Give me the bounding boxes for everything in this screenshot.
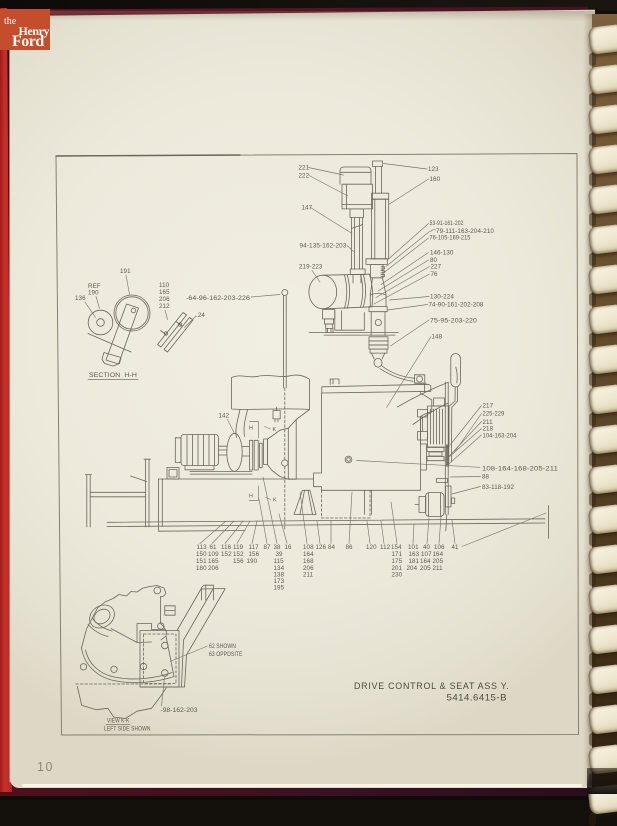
svg-text:120: 120: [366, 544, 377, 551]
svg-text:115: 115: [274, 558, 285, 565]
svg-text:123: 123: [428, 166, 439, 173]
svg-text:191: 191: [120, 268, 131, 275]
svg-text:109: 109: [208, 551, 219, 558]
svg-text:94-135-162-203: 94-135-162-203: [300, 243, 347, 250]
svg-text:41: 41: [452, 544, 460, 551]
svg-text:K: K: [273, 498, 277, 504]
svg-text:107: 107: [421, 551, 432, 558]
svg-text:171: 171: [392, 551, 403, 558]
svg-text:181: 181: [409, 558, 420, 565]
svg-text:88: 88: [482, 474, 490, 481]
svg-text:152: 152: [221, 551, 232, 558]
svg-text:164: 164: [433, 551, 444, 558]
svg-text:39: 39: [276, 551, 284, 558]
svg-text:K: K: [273, 427, 277, 433]
svg-text:106: 106: [434, 544, 445, 551]
svg-text:116: 116: [221, 544, 232, 551]
svg-text:205: 205: [420, 565, 431, 572]
svg-text:219-223: 219-223: [299, 264, 323, 271]
svg-text:-64-96-162-203-226: -64-96-162-203-226: [186, 295, 251, 302]
svg-text:.24: .24: [196, 312, 205, 319]
svg-text:110: 110: [159, 282, 170, 289]
svg-text:163: 163: [409, 551, 420, 558]
svg-text:-98-162-203: -98-162-203: [161, 707, 198, 714]
svg-text:126: 126: [316, 544, 327, 551]
svg-text:204: 204: [407, 565, 418, 572]
svg-text:113: 113: [197, 544, 208, 551]
svg-text:160: 160: [430, 176, 441, 183]
svg-text:112: 112: [380, 544, 391, 551]
svg-text:SECTION H-H: SECTION H-H: [89, 372, 137, 379]
svg-text:LEFT SIDE SHOWN: LEFT SIDE SHOWN: [104, 726, 151, 733]
svg-text:40: 40: [423, 544, 431, 551]
svg-text:211: 211: [303, 572, 314, 579]
svg-text:104-163-204: 104-163-204: [483, 433, 517, 440]
svg-text:227: 227: [431, 264, 442, 271]
svg-text:190: 190: [247, 558, 258, 565]
svg-text:190: 190: [88, 290, 99, 297]
svg-text:175: 175: [392, 558, 403, 565]
svg-text:205: 205: [433, 558, 444, 565]
svg-text:168: 168: [303, 558, 314, 565]
svg-text:230: 230: [392, 572, 403, 579]
svg-text:101: 101: [408, 544, 419, 551]
svg-text:218: 218: [483, 426, 494, 433]
svg-text:38: 38: [274, 544, 282, 551]
svg-text:83-118-192: 83-118-192: [482, 484, 514, 491]
svg-text:H: H: [249, 426, 253, 432]
svg-text:87: 87: [264, 544, 272, 551]
svg-text:150: 150: [196, 551, 207, 558]
svg-text:164: 164: [420, 558, 431, 565]
svg-text:212: 212: [159, 303, 170, 310]
svg-text:154: 154: [391, 544, 402, 551]
svg-text:119: 119: [233, 544, 244, 551]
svg-text:165: 165: [159, 289, 170, 296]
svg-text:DRIVE CONTROL & SEAT ASS Y.: DRIVE CONTROL & SEAT ASS Y.: [354, 681, 510, 692]
svg-text:108: 108: [303, 544, 314, 551]
svg-text:117: 117: [249, 544, 260, 551]
svg-text:221: 221: [299, 165, 310, 172]
svg-text:151: 151: [196, 558, 207, 565]
svg-text:152: 152: [233, 551, 244, 558]
svg-text:63 OPPOSITE: 63 OPPOSITE: [209, 651, 243, 658]
svg-text:16: 16: [285, 544, 293, 551]
svg-text:148: 148: [432, 334, 443, 341]
svg-text:108-164-168-205-211: 108-164-168-205-211: [482, 466, 559, 473]
svg-text:156: 156: [249, 551, 260, 558]
svg-text:86: 86: [346, 544, 354, 551]
svg-text:206: 206: [208, 565, 219, 572]
svg-text:84: 84: [328, 544, 336, 551]
svg-text:225-229: 225-229: [483, 411, 505, 418]
svg-text:136: 136: [75, 295, 86, 302]
svg-text:164: 164: [303, 551, 314, 558]
svg-text:53-91-161-202: 53-91-161-202: [430, 220, 464, 227]
svg-text:62 SHOWN: 62 SHOWN: [209, 643, 236, 650]
svg-text:146-130: 146-130: [430, 250, 454, 257]
svg-text:217: 217: [483, 403, 494, 410]
svg-text:VIEW K-K: VIEW K-K: [107, 718, 130, 725]
svg-text:211: 211: [433, 565, 444, 572]
svg-text:76: 76: [431, 271, 439, 278]
svg-text:74-90-161-202-208: 74-90-161-202-208: [429, 302, 484, 309]
svg-text:75-95-203-220: 75-95-203-220: [430, 318, 478, 325]
svg-text:156: 156: [233, 558, 244, 565]
svg-text:5414.6415-B: 5414.6415-B: [447, 693, 508, 704]
svg-text:130-224: 130-224: [430, 294, 454, 301]
svg-text:180: 180: [196, 565, 207, 572]
svg-text:61: 61: [210, 544, 218, 551]
svg-text:H: H: [249, 494, 253, 500]
svg-text:222: 222: [299, 173, 310, 180]
svg-text:195: 195: [274, 585, 285, 592]
svg-text:206: 206: [159, 296, 170, 303]
svg-text:165: 165: [208, 558, 219, 565]
svg-text:76-105-169-215: 76-105-169-215: [430, 235, 471, 242]
svg-text:142: 142: [219, 413, 230, 420]
